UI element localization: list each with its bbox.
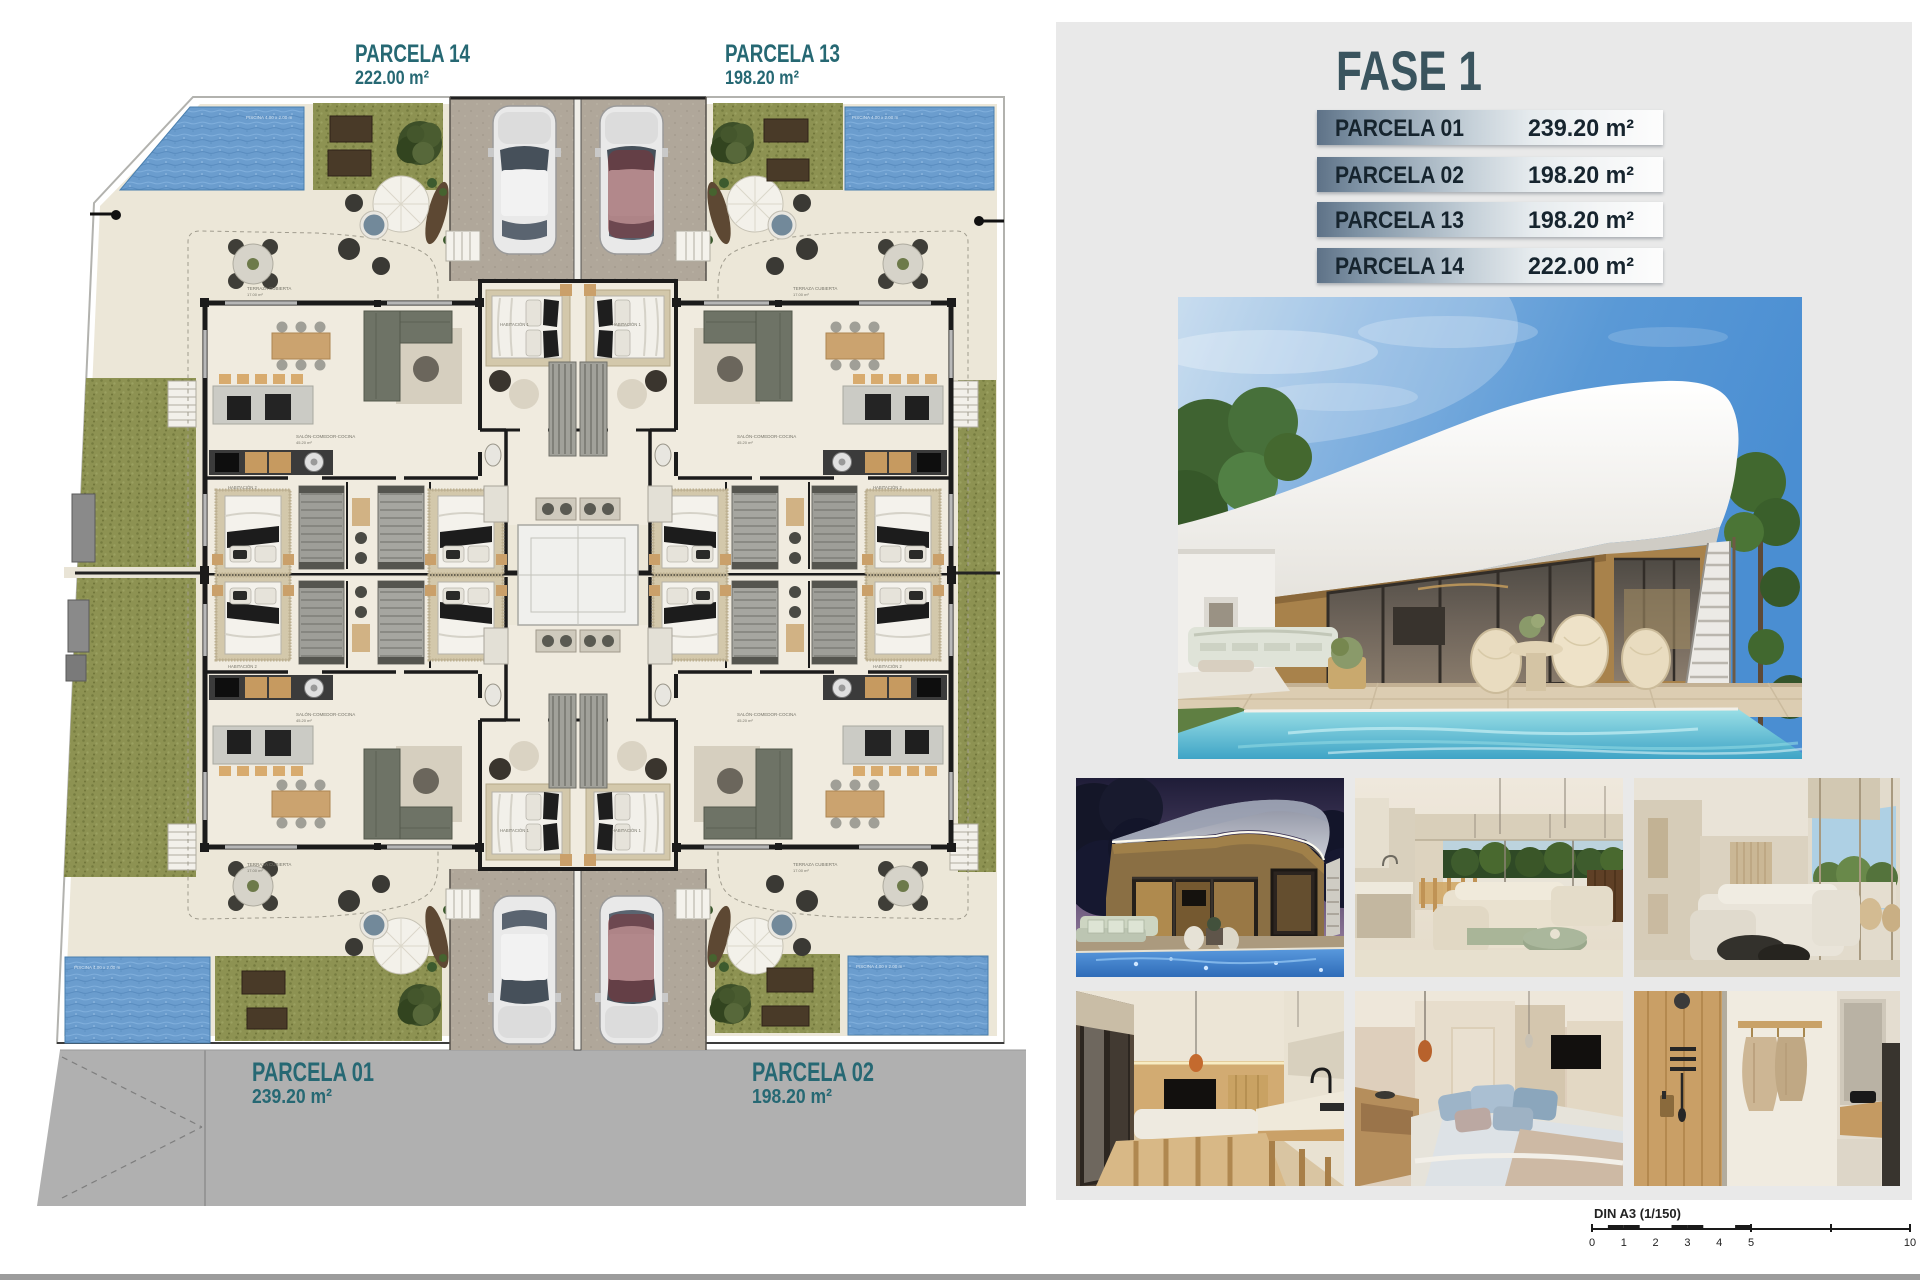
svg-text:17.00 m²: 17.00 m² bbox=[793, 868, 809, 873]
svg-text:PISCINA 4.00 x 2.00 m: PISCINA 4.00 x 2.00 m bbox=[856, 964, 903, 969]
svg-text:PARCELA 13: PARCELA 13 bbox=[1335, 207, 1464, 234]
svg-text:HABITACIÓN 1: HABITACIÓN 1 bbox=[500, 322, 529, 327]
svg-text:198.20 m²: 198.20 m² bbox=[725, 68, 799, 89]
svg-text:222.00 m²: 222.00 m² bbox=[355, 68, 429, 89]
svg-text:PARCELA 02: PARCELA 02 bbox=[752, 1057, 874, 1087]
svg-text:222.00 m²: 222.00 m² bbox=[1528, 253, 1634, 280]
svg-text:4: 4 bbox=[1716, 1237, 1722, 1249]
svg-text:SALÓN-COMEDOR-COCINA: SALÓN-COMEDOR-COCINA bbox=[737, 711, 796, 717]
svg-text:17.00 m²: 17.00 m² bbox=[247, 868, 263, 873]
svg-text:TERRAZA CUBIERTA: TERRAZA CUBIERTA bbox=[247, 862, 291, 867]
svg-text:PISCINA 4.00 x 2.00 m: PISCINA 4.00 x 2.00 m bbox=[246, 115, 293, 120]
svg-text:TERRAZA CUBIERTA: TERRAZA CUBIERTA bbox=[793, 862, 837, 867]
svg-text:DIN A3 (1/150): DIN A3 (1/150) bbox=[1594, 1206, 1681, 1221]
svg-text:0: 0 bbox=[1589, 1237, 1595, 1249]
svg-text:45.20 m²: 45.20 m² bbox=[296, 718, 312, 723]
svg-text:10: 10 bbox=[1904, 1237, 1916, 1249]
svg-text:198.20 m²: 198.20 m² bbox=[1528, 207, 1634, 234]
svg-text:SALÓN-COMEDOR-COCINA: SALÓN-COMEDOR-COCINA bbox=[296, 711, 355, 717]
svg-text:PARCELA 14: PARCELA 14 bbox=[355, 40, 470, 68]
svg-text:5: 5 bbox=[1748, 1237, 1754, 1249]
svg-text:FASE 1: FASE 1 bbox=[1336, 39, 1482, 98]
svg-text:HABITACIÓN 1: HABITACIÓN 1 bbox=[612, 322, 641, 327]
svg-text:45.20 m²: 45.20 m² bbox=[737, 718, 753, 723]
svg-text:2: 2 bbox=[1653, 1237, 1659, 1249]
svg-text:HABITACIÓN 2: HABITACIÓN 2 bbox=[228, 664, 257, 669]
svg-text:SALÓN-COMEDOR-COCINA: SALÓN-COMEDOR-COCINA bbox=[737, 433, 796, 439]
svg-text:PISCINA 4.00 x 2.00 m: PISCINA 4.00 x 2.00 m bbox=[852, 115, 899, 120]
svg-text:1: 1 bbox=[1621, 1237, 1627, 1249]
svg-text:17.00 m²: 17.00 m² bbox=[247, 292, 263, 297]
svg-text:TERRAZA CUBIERTA: TERRAZA CUBIERTA bbox=[793, 286, 837, 291]
svg-text:3: 3 bbox=[1684, 1237, 1690, 1249]
svg-text:45.20 m²: 45.20 m² bbox=[737, 440, 753, 445]
svg-text:17.00 m²: 17.00 m² bbox=[793, 292, 809, 297]
svg-text:PISCINA 4.00 x 2.00 m: PISCINA 4.00 x 2.00 m bbox=[74, 965, 121, 970]
svg-text:PARCELA 01: PARCELA 01 bbox=[1335, 115, 1464, 142]
svg-text:45.20 m²: 45.20 m² bbox=[296, 440, 312, 445]
svg-text:HABITACIÓN 2: HABITACIÓN 2 bbox=[228, 485, 257, 490]
svg-text:198.20 m²: 198.20 m² bbox=[1528, 162, 1634, 189]
svg-text:SALÓN-COMEDOR-COCINA: SALÓN-COMEDOR-COCINA bbox=[296, 433, 355, 439]
svg-text:PARCELA 02: PARCELA 02 bbox=[1335, 162, 1464, 189]
svg-text:PARCELA 01: PARCELA 01 bbox=[252, 1057, 374, 1087]
svg-text:HABITACIÓN 1: HABITACIÓN 1 bbox=[500, 828, 529, 833]
svg-text:198.20 m²: 198.20 m² bbox=[752, 1086, 832, 1108]
svg-text:TERRAZA CUBIERTA: TERRAZA CUBIERTA bbox=[247, 286, 291, 291]
svg-text:239.20 m²: 239.20 m² bbox=[1528, 115, 1634, 142]
svg-text:HABITACIÓN 2: HABITACIÓN 2 bbox=[873, 485, 902, 490]
svg-text:HABITACIÓN 2: HABITACIÓN 2 bbox=[873, 664, 902, 669]
svg-text:PARCELA 13: PARCELA 13 bbox=[725, 40, 840, 68]
svg-text:239.20 m²: 239.20 m² bbox=[252, 1086, 332, 1108]
svg-text:PARCELA 14: PARCELA 14 bbox=[1335, 253, 1465, 280]
svg-text:HABITACIÓN 1: HABITACIÓN 1 bbox=[612, 828, 641, 833]
